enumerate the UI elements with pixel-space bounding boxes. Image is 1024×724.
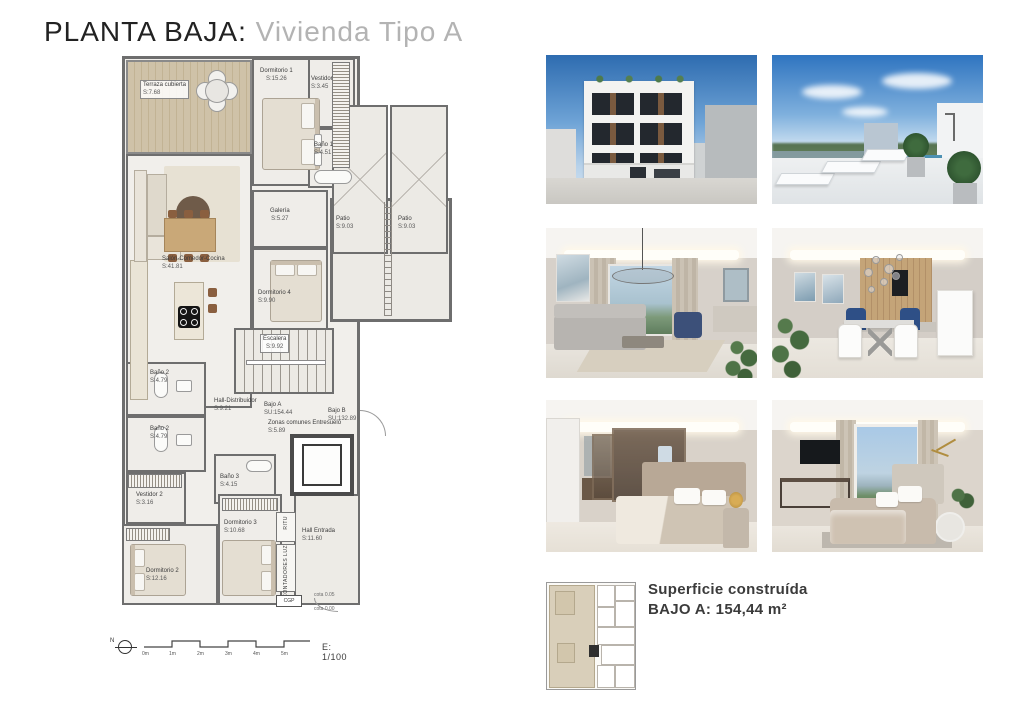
tv xyxy=(800,440,840,464)
bathtub-1 xyxy=(314,170,352,184)
north-arrow-icon xyxy=(118,640,132,654)
label-hall-entrada: Hall EntradaS:11.60 xyxy=(302,528,335,543)
page-title-main: PLANTA BAJA: xyxy=(44,16,247,47)
wc-2a xyxy=(176,380,192,392)
bathtub-3 xyxy=(246,460,272,472)
key-plan-elevator xyxy=(589,645,599,657)
label-escalera: EscaleraS:9.92 xyxy=(260,334,289,353)
scale-bar: N 0m 1m 2m 3m 4m 5m E: 1/100 xyxy=(118,638,348,664)
label-vestidor: VestidorS:3.45 xyxy=(311,76,333,91)
plant xyxy=(772,312,814,378)
photo-bedroom-dressing xyxy=(546,400,757,552)
wall-art xyxy=(794,272,816,302)
label-dorm3: Dormitorio 3S:10.68 xyxy=(224,520,257,535)
label-ritu: RITU xyxy=(283,516,289,530)
label-cota-b: cota 0.00 xyxy=(314,606,335,612)
white-cabinet xyxy=(937,290,973,356)
terrace-table xyxy=(196,70,240,114)
floor-plan: Terraza cubiertaS:7.68 Dormitorio 1S:15.… xyxy=(118,50,463,670)
north-label: N xyxy=(110,638,114,644)
coffee-table xyxy=(622,336,664,348)
label-patio1: PatioS:9.03 xyxy=(336,216,353,231)
cgp-box: CGP xyxy=(276,595,302,607)
kitchen-counter xyxy=(130,260,148,400)
label-terraza: Terraza cubiertaS:7.68 xyxy=(140,80,189,99)
wardrobe-dorm3 xyxy=(222,498,278,511)
surface-summary: Superficie construída BAJO A: 154,44 m² xyxy=(648,580,808,621)
photo-dining-kitchen xyxy=(772,228,983,378)
sun-lounger xyxy=(775,173,835,185)
scale-bar-line xyxy=(142,638,312,650)
plant xyxy=(721,332,757,378)
photo-building-facade xyxy=(546,55,757,204)
label-dorm1: Dormitorio 1S:15.26 xyxy=(260,68,293,83)
door-arc-bajo-b xyxy=(360,410,386,436)
wc-2b xyxy=(176,434,192,446)
side-table xyxy=(935,512,965,542)
label-salon: Salón-Comedor-CocinaS:41.81 xyxy=(162,256,225,271)
plant xyxy=(947,151,981,185)
ceiling-lamp xyxy=(612,268,674,284)
bed-dorm3 xyxy=(222,540,276,596)
hob xyxy=(178,306,200,328)
wardrobe-dorm2 xyxy=(126,528,170,541)
label-dorm2: Dormitorio 2S:12.16 xyxy=(146,568,179,583)
plant xyxy=(947,484,975,512)
wall-art xyxy=(822,274,844,304)
dining-table xyxy=(164,218,216,252)
label-contadores: CONTADORES LUZ xyxy=(283,545,289,598)
label-hall-distribuidor: Hall-DistribuidorS:9.21 xyxy=(214,398,257,413)
label-bano1: Baño 1S:4.51 xyxy=(314,142,333,157)
summary-line2: BAJO A: 154,44 m² xyxy=(648,600,808,620)
scale-ratio: E: 1/100 xyxy=(322,642,348,662)
wall-art xyxy=(556,254,590,302)
wardrobe-hatch-2 xyxy=(128,474,182,488)
building xyxy=(584,81,694,189)
room-galeria xyxy=(252,190,328,248)
label-vestidor2: Vestidor 2S:3.16 xyxy=(136,492,163,507)
bed-dorm1 xyxy=(262,98,320,170)
white-chair xyxy=(838,324,862,358)
sofa xyxy=(134,170,147,262)
photo-rooftop-solarium xyxy=(772,55,983,204)
label-bajo-a: Bajo ASU:154.44 xyxy=(264,402,292,417)
wardrobe-hatch xyxy=(332,62,350,168)
elevator xyxy=(290,434,354,496)
label-cota-a: cota 0.05 xyxy=(314,592,335,598)
brochure-page: { "title": { "main": "PLANTA BAJA:", "su… xyxy=(0,0,1024,724)
white-chair xyxy=(894,324,918,358)
label-bano3: Baño 3S:4.15 xyxy=(220,474,239,489)
label-bano2b: Baño 2S:4.79 xyxy=(150,426,169,441)
summary-line1: Superficie construída xyxy=(648,580,808,600)
outdoor-shower xyxy=(953,113,955,141)
key-plan xyxy=(546,582,636,690)
page-title: PLANTA BAJA: Vivienda Tipo A xyxy=(44,16,463,48)
photo-bedroom-views xyxy=(772,400,983,552)
plant xyxy=(903,133,929,159)
patio-ladder xyxy=(384,202,392,316)
blue-armchair xyxy=(674,312,702,338)
room-patio-2 xyxy=(390,105,448,254)
bedside-table xyxy=(723,508,749,548)
glass-partition xyxy=(592,434,614,500)
page-title-sub: Vivienda Tipo A xyxy=(247,16,463,47)
label-patio2: PatioS:9.03 xyxy=(398,216,415,231)
label-bano2a: Baño 2S:4.79 xyxy=(150,370,169,385)
label-galeria: GaleríaS:5.27 xyxy=(270,208,290,223)
mirror xyxy=(723,268,749,302)
sun-lounger xyxy=(821,161,881,173)
label-dorm4: Dormitorio 4S:9.90 xyxy=(258,290,291,305)
photo-living-room xyxy=(546,228,757,378)
door xyxy=(546,418,580,534)
gold-lamp xyxy=(729,492,743,508)
label-bajo-b: Bajo BSU:132.89 xyxy=(328,408,356,423)
gold-sconce xyxy=(936,439,956,452)
room-hall-entrada xyxy=(294,494,360,605)
